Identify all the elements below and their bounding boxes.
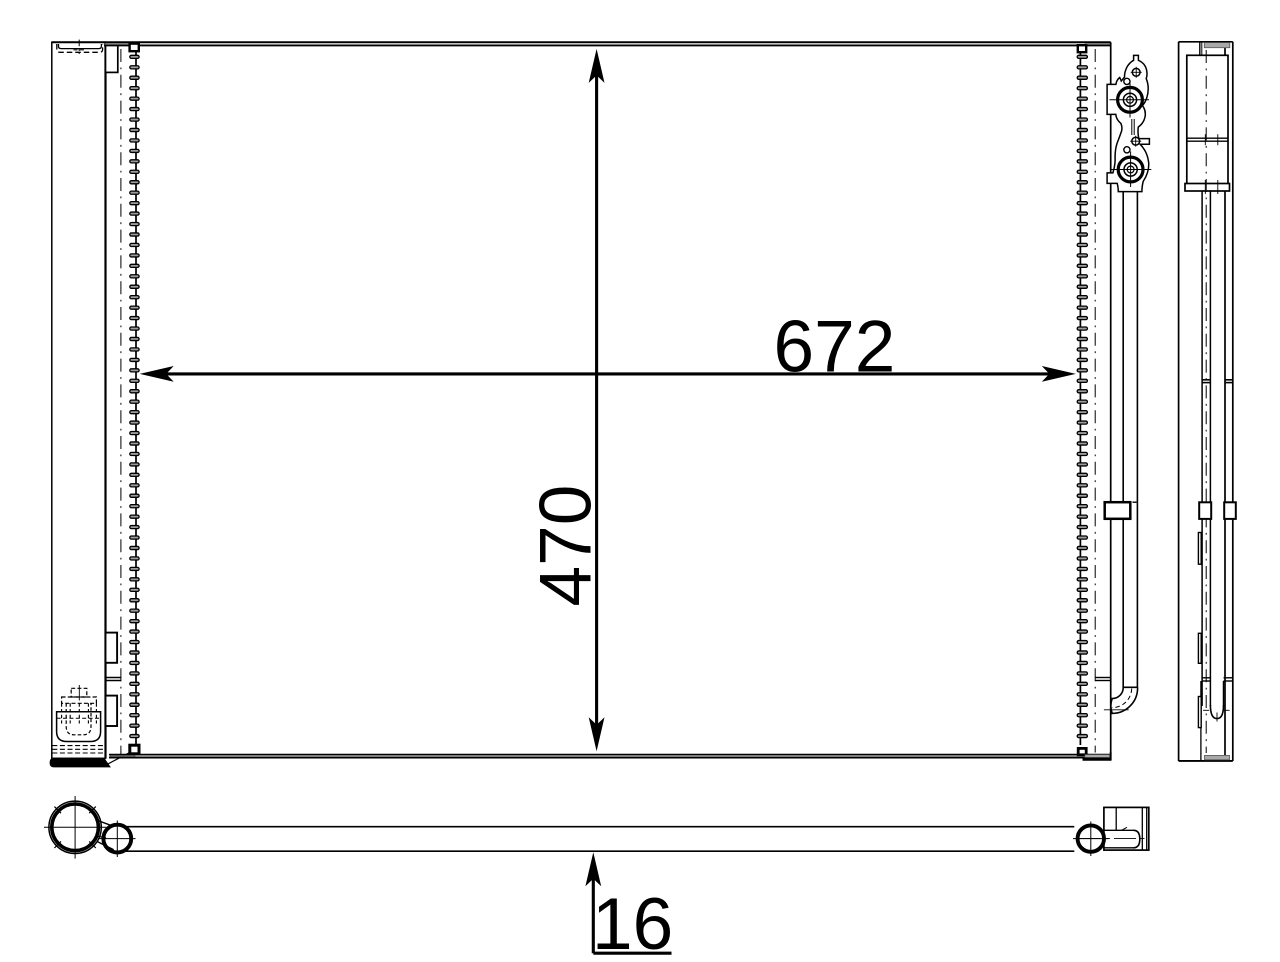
svg-text:470: 470: [526, 485, 607, 607]
svg-text:672: 672: [774, 306, 896, 387]
svg-text:16: 16: [592, 884, 673, 962]
